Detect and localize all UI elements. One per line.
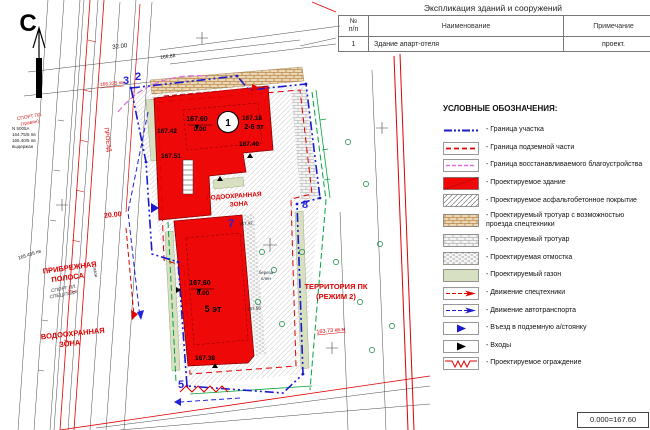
legend-item: - Граница подземной части: [443, 142, 649, 155]
col-header-num-label: № п/п: [347, 18, 360, 34]
explication-table: № п/п Наименование Примечание 1 Здание а…: [338, 15, 650, 52]
legend-item: - Граница участка: [443, 124, 649, 137]
zone-label: ЗОНА: [59, 338, 82, 349]
point-number: 2: [135, 71, 141, 83]
elev-label: 167.51: [161, 153, 181, 160]
floors-label: 2-6 эт: [244, 124, 264, 131]
elev-label: 167.60: [186, 116, 208, 123]
point-number: 5: [178, 379, 184, 391]
survey-point-label: 165.40/5 пв: [12, 138, 36, 143]
elev-label: 167.38: [195, 355, 215, 362]
legend-item: - Проектируемый газон: [443, 269, 649, 282]
zone-label: ТЕРРИТОРИЯ ПК: [304, 282, 367, 291]
legend-item-label: - Проектируемый тротуар с возможностью п…: [486, 212, 646, 230]
legend-item-label: - Граница восстанавливаемого благоустрой…: [486, 161, 646, 170]
legend-item-label: - Проектируемое асфальтобетонное покрыти…: [486, 197, 646, 206]
elev-label: 0.00: [197, 290, 210, 297]
row-note-cell: проект.: [564, 37, 650, 52]
tree-species-label: береза: [259, 270, 274, 275]
legend-symbol-lawn-icon: [443, 269, 479, 282]
area-label: 163.73 кв.м: [316, 326, 346, 335]
legend-symbol-parking-entry-icon: [443, 322, 479, 335]
zone-label: (РЕЖИМ 2): [316, 292, 356, 301]
legend-item: - Проектируемый тротуар с возможностью п…: [443, 212, 649, 230]
table-row: 1 Здание апарт-отеля проект.: [339, 37, 650, 52]
legend-item-label: - Граница подземной части: [486, 144, 646, 153]
elev-label: 167.18: [242, 115, 262, 122]
legend-symbol-restored-boundary-icon: [443, 159, 479, 172]
legend-block: УСЛОВНЫЕ ОБОЗНАЧЕНИЯ: - Граница участка …: [443, 104, 649, 375]
spot-elevation: 166.88: [160, 53, 176, 61]
legend-item-label: - Проектируемое здание: [486, 179, 646, 188]
legend-item: - Проектируемое здание: [443, 177, 649, 190]
legend-item: - Въезд в подземную а/стоянку: [443, 322, 649, 335]
elev-label: 167.60: [189, 280, 211, 287]
dimension-label: 20.00: [104, 211, 122, 220]
legend-item: - Движение спецтехники: [443, 287, 649, 300]
legend-symbol-parcel-boundary-icon: [443, 124, 479, 137]
table-header-row: № п/п Наименование Примечание: [339, 16, 650, 37]
north-arrow-icon: С: [19, 10, 45, 98]
survey-point-label: N 5005А: [12, 126, 30, 131]
site-plan-map: С 1 167.60 0.00 167.18 2-6 эт 167.42 167…: [0, 0, 436, 430]
dimension-label: 32.00: [112, 43, 128, 51]
north-label: С: [19, 10, 36, 37]
surface-label: газон: [92, 266, 99, 278]
stair-symbol: [183, 160, 193, 194]
col-header-num: № п/п: [339, 16, 369, 37]
point-number: 8: [302, 199, 308, 211]
drawing-sheet: С 1 167.60 0.00 167.18 2-6 эт 167.42 167…: [0, 0, 650, 430]
legend-symbol-entrances-icon: [443, 340, 479, 353]
legend-item-label: - Движение автотранспорта: [486, 307, 646, 316]
legend-symbol-auto-traffic-icon: [443, 304, 479, 317]
elev-label: 167.42: [157, 128, 177, 135]
tree-species-label: клен: [261, 276, 271, 281]
legend-item: - Проектируемый тротуар: [443, 234, 649, 247]
legend-title: УСЛОВНЫЕ ОБОЗНАЧЕНИЯ:: [443, 104, 649, 113]
legend-item: - Проектируемая отмостка: [443, 252, 649, 265]
legend-item-label: - Входы: [486, 342, 646, 351]
point-number: 7: [228, 218, 234, 230]
legend-symbol-fence-icon: [443, 357, 479, 370]
explication-table-block: Экспликация зданий и сооружений № п/п На…: [338, 3, 648, 52]
legend-item-label: - Проектируемый тротуар: [486, 236, 646, 245]
floors-label: 5 эт: [205, 304, 222, 314]
elev-label: 0.00: [194, 126, 207, 133]
legend-symbol-asphalt-icon: [443, 194, 479, 207]
legend-item-label: - Проектируемое ограждение: [486, 359, 646, 368]
zero-elevation-box: 0.000=167.60: [577, 412, 649, 428]
legend-item: - Граница восстанавливаемого благоустрой…: [443, 159, 649, 172]
zone-label: ЗОНА: [229, 200, 248, 208]
legend-item: - Движение автотранспорта: [443, 304, 649, 317]
legend-symbol-sidewalk-heavy-icon: [443, 214, 479, 227]
survey-point-label: выдержан: [12, 144, 34, 149]
row-name-cell: Здание апарт-отеля: [369, 37, 564, 52]
col-header-note: Примечание: [564, 16, 650, 37]
row-num-cell: 1: [339, 37, 369, 52]
legend-item-label: - Проектируемый газон: [486, 271, 646, 280]
legend-symbol-blind-area-icon: [443, 252, 479, 265]
building-number: 1: [225, 118, 231, 129]
legend-item: - Проектируемое ограждение: [443, 357, 649, 370]
street-label: ПРОЕЗД: [102, 127, 111, 152]
col-header-name: Наименование: [369, 16, 564, 37]
legend-symbol-underground-boundary-icon: [443, 142, 479, 155]
elev-label: 167.40: [239, 141, 259, 148]
legend-symbol-sidewalk-icon: [443, 234, 479, 247]
legend-item: - Входы: [443, 340, 649, 353]
legend-item-label: - Граница участка: [486, 126, 646, 135]
legend-item-label: - Въезд в подземную а/стоянку: [486, 324, 646, 333]
table-title: Экспликация зданий и сооружений: [338, 3, 648, 13]
legend-item: - Проектируемое асфальтобетонное покрыти…: [443, 194, 649, 207]
legend-symbol-service-traffic-icon: [443, 287, 479, 300]
legend-item-label: - Движение спецтехники: [486, 289, 646, 298]
legend-item-label: - Проектируемая отмостка: [486, 254, 646, 263]
legend-symbol-building-icon: [443, 177, 479, 190]
survey-point-label: 164.75/5 пв: [12, 132, 36, 137]
